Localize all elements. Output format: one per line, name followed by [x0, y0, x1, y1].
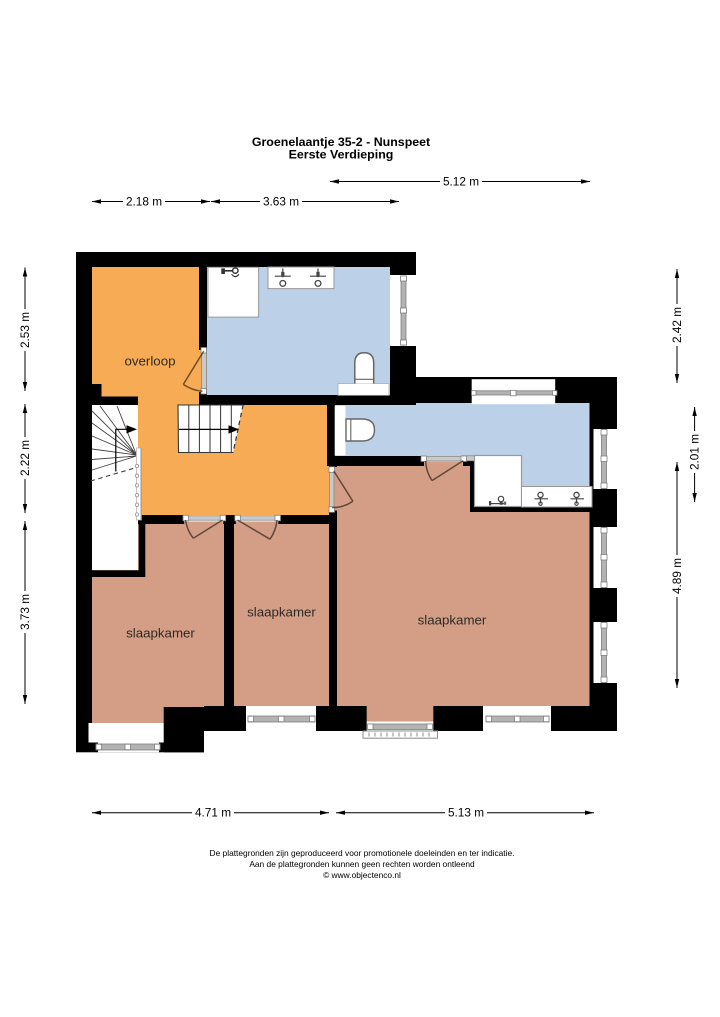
- svg-text:4.71 m: 4.71 m: [195, 806, 231, 820]
- svg-text:2.22 m: 2.22 m: [18, 440, 32, 476]
- svg-text:slaapkamer: slaapkamer: [126, 626, 195, 641]
- svg-text:5.12 m: 5.12 m: [443, 174, 479, 188]
- svg-text:5.13 m: 5.13 m: [448, 806, 484, 820]
- svg-text:Aan de plattegronden kunnen ge: Aan de plattegronden kunnen geen rechten…: [249, 859, 475, 869]
- svg-text:slaapkamer: slaapkamer: [247, 605, 316, 620]
- svg-text:Eerste Verdieping: Eerste Verdieping: [289, 148, 394, 162]
- svg-text:overloop: overloop: [124, 354, 175, 369]
- svg-text:4.89 m: 4.89 m: [670, 558, 684, 594]
- svg-text:slaapkamer: slaapkamer: [418, 613, 487, 628]
- svg-text:© www.objectenco.nl: © www.objectenco.nl: [323, 870, 401, 880]
- svg-text:2.01 m: 2.01 m: [687, 434, 701, 470]
- svg-text:3.63 m: 3.63 m: [263, 194, 299, 208]
- svg-text:2.18 m: 2.18 m: [126, 194, 162, 208]
- svg-text:2.53 m: 2.53 m: [18, 312, 32, 348]
- svg-text:De plattegronden zijn geproduc: De plattegronden zijn geproduceerd voor …: [210, 848, 515, 858]
- svg-text:2.42 m: 2.42 m: [670, 307, 684, 343]
- svg-text:3.73 m: 3.73 m: [18, 594, 32, 630]
